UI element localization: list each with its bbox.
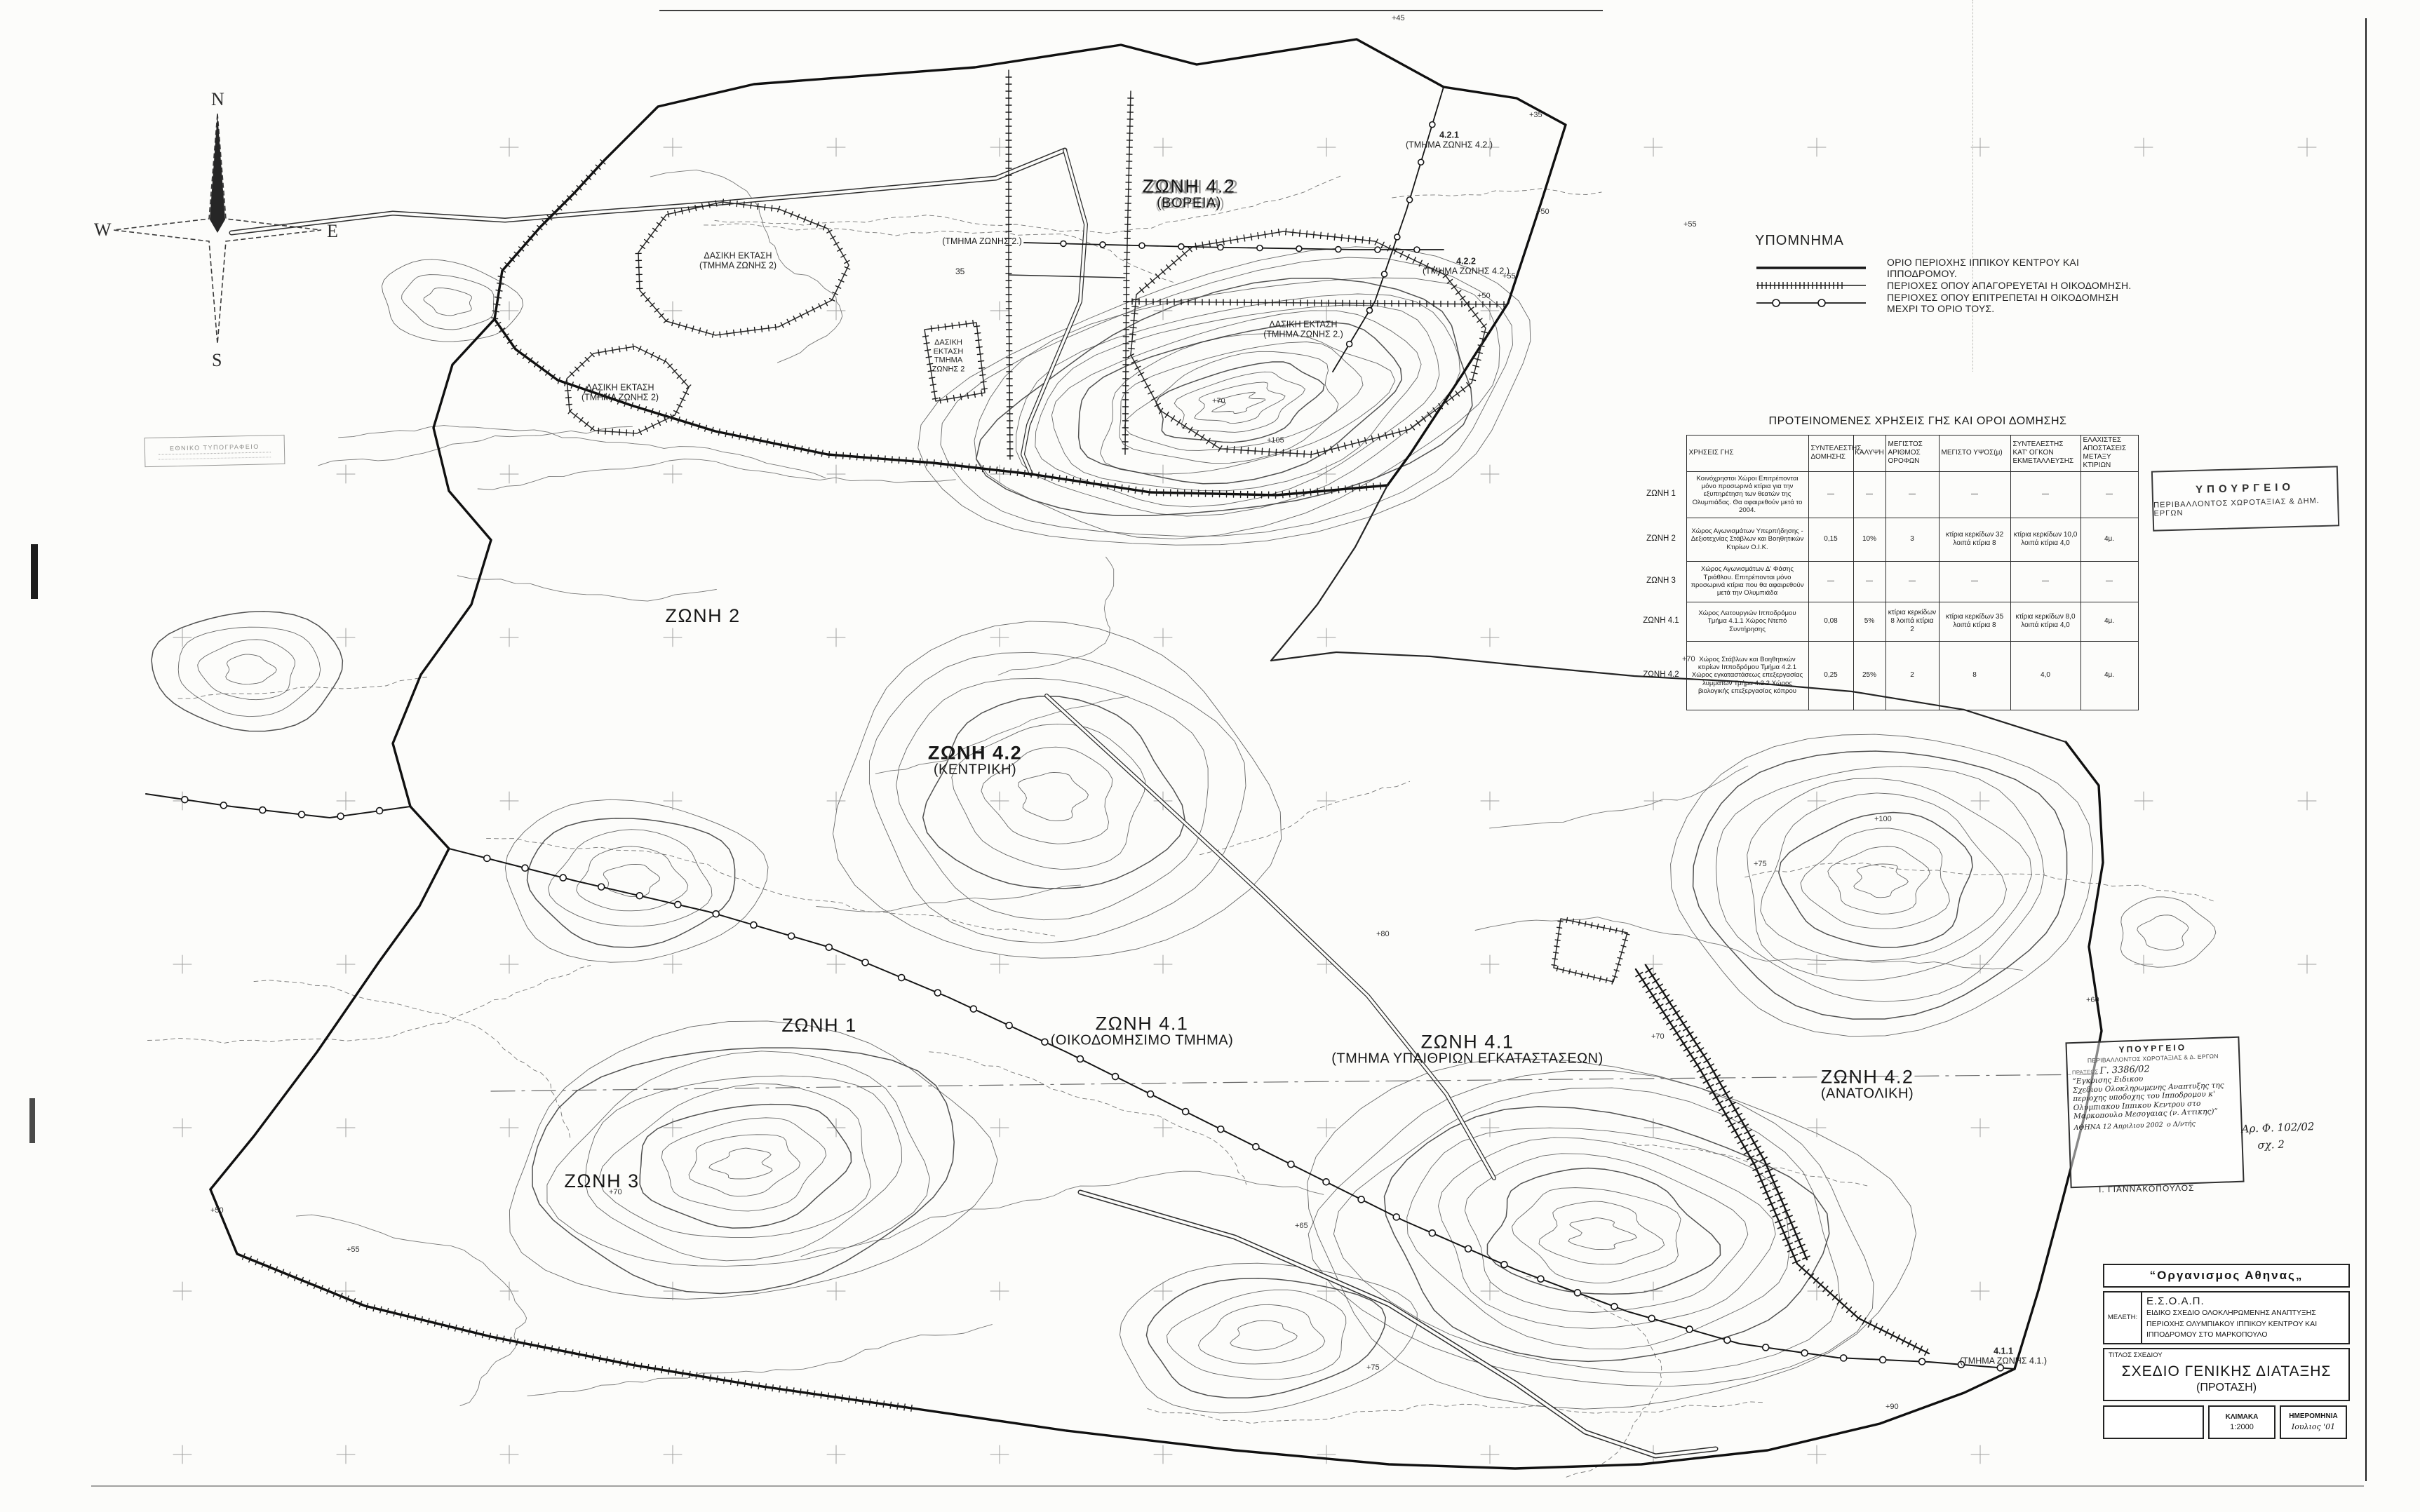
drawing-subtitle: (ΠΡΟΤΑΣΗ) [2109, 1382, 2344, 1394]
zone-label-4-2-central: ΖΩΝΗ 4.2 (ΚΕΝΤΡΙΚΗ) [928, 743, 1022, 777]
area-label-zone2-part: (ΤΜΗΜΑ ΖΩΝΗΣ 2.) [942, 236, 1022, 246]
row-zone-label: ΖΩΝΗ 4.2 [1636, 641, 1686, 710]
row-zone-label: ΖΩΝΗ 3 [1636, 561, 1686, 602]
table-cell: 4,0 [2010, 641, 2081, 710]
land-use-table: ΠΡΟΤΕΙΝΟΜΕΝΕΣ ΧΡΗΣΕΙΣ ΓΗΣ ΚΑΙ ΟΡΟΙ ΔΟΜΗΣ… [1636, 415, 2158, 710]
hatched-line-icon [1755, 280, 1867, 291]
legend: ΥΠΟΜΝΗΜΑ ΟΡΙΟ ΠΕΡΙΟΧΗΣ ΙΠΠΙΚΟΥ ΚΕΝΤΡΟΥ Κ… [1755, 233, 2134, 311]
compass-n-label: N [211, 89, 224, 109]
roads [231, 150, 2097, 1456]
scan-crease [1972, 0, 1973, 372]
approval-protocol-prefix: ΠΡΑΞΕΩΣ [2072, 1069, 2099, 1076]
scale-label: ΚΛΙΜΑΚΑ [2226, 1413, 2259, 1421]
zone-label-4-1-openair: ΖΩΝΗ 4.1 (ΤΜΗΜΑ ΥΠΑΙΘΡΙΩΝ ΕΓΚΑΤΑΣΤΑΣΕΩΝ) [1331, 1032, 1603, 1066]
table-cell: 8 [1939, 641, 2011, 710]
elevation-label: +70 [1651, 1032, 1665, 1041]
zone-label-4-2-east: ΖΩΝΗ 4.2 (ΑΝΑΤΟΛΙΚΗ) [1821, 1067, 1914, 1101]
table-title: ΠΡΟΤΕΙΝΟΜΕΝΕΣ ΧΡΗΣΕΙΣ ΓΗΣ ΚΑΙ ΟΡΟΙ ΔΟΜΗΣ… [1678, 415, 2158, 428]
table-cell: — [1808, 471, 1854, 518]
elevation-label: +100 [1874, 815, 1892, 823]
grid-crosses [173, 138, 2316, 1464]
approval-stamp: ΥΠΟΥΡΓΕΙΟ ΠΕΡΙΒΑΛΛΟΝΤΟΣ ΧΩΡΟΤΑΞΙΑΣ & Δ. … [2065, 1037, 2244, 1189]
map-sheet: N E S W ΕΘΝΙΚΟ ΤΥΠΟΓΡΑΦΕΙΟ ΥΠΟΜΝΗΜΑ ΟΡΙΟ… [0, 0, 2420, 1512]
table-cell: Κοινόχρηστοι Χώροι Επιτρέπονται μόνο προ… [1686, 471, 1809, 518]
elevation-label: +65 [1295, 1222, 1308, 1230]
table-cell: — [1853, 561, 1886, 602]
ministry-stamp-line1: ΥΠΟΥΡΓΕΙΟ [2196, 481, 2294, 496]
zone-label-4-2-north: ΖΩΝΗ 4.2 (ΒΟΡΕΙΑ) [1143, 176, 1236, 210]
elevation-label: +50 [210, 1206, 224, 1215]
date-label: ΗΜΕΡΟΜΗΝΙΑ [2289, 1412, 2337, 1420]
row-zone-label: ΖΩΝΗ 4.1 [1636, 602, 1686, 641]
compass-rose: N E S W [91, 84, 344, 379]
drawing-title-box: ΤΙΤΛΟΣ ΣΧΕΔΙΟΥ ΣΧΕΔΙΟ ΓΕΝΙΚΗΣ ΔΙΑΤΑΞΗΣ (… [2103, 1348, 2350, 1401]
elevation-label: +75 [1754, 860, 1767, 868]
study-label: ΜΕΛΕΤΗ: [2103, 1291, 2141, 1344]
table-cell: 3 [1885, 518, 1940, 562]
table-cell: — [1808, 561, 1854, 602]
elevation-label: +50 [1477, 292, 1491, 300]
compass-north-needle [210, 114, 225, 233]
row-zone-label: ΖΩΝΗ 2 [1636, 518, 1686, 561]
project-line: ΙΠΠΟΔΡΟΜΟΥ ΣΤΟ ΜΑΡΚΟΠΟΥΛΟ [2146, 1330, 2344, 1340]
compass-e-label: E [327, 221, 338, 241]
title-block: “Οργανισμος Αθηνας„ ΜΕΛΕΤΗ: Ε.Σ.Ο.Α.Π. Ε… [2103, 1264, 2350, 1439]
elevation-label: +45 [1392, 14, 1405, 22]
area-label-411: 4.1.1 (ΤΜΗΜΑ ΖΩΝΗΣ 4.1.) [1960, 1346, 2047, 1367]
table-cell: 0,08 [1808, 602, 1854, 642]
table-cell: — [1939, 561, 2011, 602]
area-label-forest-3: ΔΑΣΙΚΗ ΕΚΤΑΣΗ ΤΜΗΜΑ ΖΩΝΗΣ 2 [921, 339, 976, 374]
col-header: ΜΕΓΙΣΤΟΣ ΑΡΙΘΜΟΣ ΟΡΟΦΩΝ [1885, 435, 1940, 472]
table-cell: κτίρια κερκίδων 10,0 λοιπά κτίρια 4,0 [2010, 518, 2081, 562]
circle-line-icon [1755, 297, 1867, 309]
table-cell: 4μ. [2080, 641, 2139, 710]
table-cell: κτίρια κερκίδων 35 λοιπά κτίρια 8 [1939, 602, 2011, 642]
table-cell: Χώρος Αγωνισμάτων Δ' Φάσης Τριάθλου. Επι… [1686, 561, 1809, 602]
sheet-frame-right [2365, 18, 2367, 1481]
table-cell: Χώρος Λειτουργιών Ιπποδρόμου Τμήμα 4.1.1… [1686, 602, 1809, 642]
elevation-label: +70 [1682, 655, 1695, 663]
elevation-label: +80 [1376, 930, 1390, 938]
table-cell: — [2010, 471, 2081, 518]
col-header: ΕΛΑΧΙΣΤΕΣ ΑΠΟΣΤΑΣΕΙΣ ΜΕΤΑΞΥ ΚΤΙΡΙΩΝ [2080, 435, 2139, 472]
elevation-label: +105 [1267, 436, 1284, 445]
area-label-421: 4.2.1 (ΤΜΗΜΑ ΖΩΝΗΣ 4.2.) [1406, 130, 1493, 151]
table-cell: — [2010, 561, 2081, 602]
col-header: ΧΡΗΣΕΙΣ ΓΗΣ [1686, 435, 1809, 472]
col-header: ΚΑΛΥΨΗ [1853, 435, 1886, 472]
project-line: ΕΙΔΙΚΟ ΣΧΕΔΙΟ ΟΛΟΚΛΗΡΩΜΕΝΗΣ ΑΝΑΠΤΥΞΗΣ [2146, 1309, 2344, 1318]
approval-role: ο Δ/ντής [2167, 1120, 2196, 1128]
map-canvas [0, 0, 2420, 1512]
contour-lines [148, 170, 2216, 1477]
reference-number: Αρ. Φ. 102/02 [2241, 1118, 2315, 1138]
legend-item-label: ΟΡΙΟ ΠΕΡΙΟΧΗΣ ΙΠΠΙΚΟΥ ΚΕΝΤΡΟΥ ΚΑΙ ΙΠΠΟΔΡ… [1887, 257, 2134, 279]
elevation-label: +90 [1885, 1403, 1899, 1411]
solid-line-icon [1755, 263, 1867, 273]
elevation-label: +75 [1366, 1363, 1380, 1372]
table-cell: Χώρος Αγωνισμάτων Υπερπήδησης - Δεξιοτεχ… [1686, 518, 1809, 562]
legend-item-label: ΠΕΡΙΟΧΕΣ ΟΠΟΥ ΕΠΙΤΡΕΠΕΤΑΙ Η ΟΙΚΟΔΟΜΗΣΗ Μ… [1887, 292, 2134, 314]
legend-item-label: ΠΕΡΙΟΧΕΣ ΟΠΟΥ ΑΠΑΓΟΡΕΥΕΤΑΙ Η ΟΙΚΟΔΟΜΗΣΗ. [1887, 280, 2131, 291]
col-header: ΣΥΝΤΕΛΕΣΤΗΣ ΔΟΜΗΣΗΣ [1808, 435, 1854, 472]
row-zone-label: ΖΩΝΗ 1 [1636, 471, 1686, 518]
table-cell: 0,25 [1808, 641, 1854, 710]
sheet-frame-top [659, 10, 1603, 11]
table-corner-cell [1636, 435, 1686, 471]
sheet-frame-bottom [91, 1485, 2364, 1487]
reference-sheet: σχ. 2 [2257, 1135, 2315, 1154]
compass-s-label: S [212, 350, 222, 370]
scale-box: ΚΛΙΜΑΚΑ 1:2000 [2208, 1405, 2276, 1439]
printing-office-stamp: ΕΘΝΙΚΟ ΤΥΠΟΓΡΑΦΕΙΟ [144, 435, 285, 467]
zone-label-4-1-buildable: ΖΩΝΗ 4.1 (ΟΙΚΟΔΟΜΗΣΙΜΟ ΤΜΗΜΑ) [1051, 1013, 1234, 1048]
legend-item-boundary: ΟΡΙΟ ΠΕΡΙΟΧΗΣ ΙΠΠΙΚΟΥ ΚΕΝΤΡΟΥ ΚΑΙ ΙΠΠΟΔΡ… [1755, 259, 2134, 276]
ministry-stamp-line2: ΠΕΡΙΒΑΛΛΟΝΤΟΣ ΧΩΡΟΤΑΞΙΑΣ & ΔΗΜ. ΕΡΓΩΝ [2153, 496, 2338, 518]
drawing-title: ΣΧΕΔΙΟ ΓΕΝΙΚΗΣ ΔΙΑΤΑΞΗΣ [2109, 1363, 2344, 1380]
study-description: Ε.Σ.Ο.Α.Π. ΕΙΔΙΚΟ ΣΧΕΔΙΟ ΟΛΟΚΛΗΡΩΜΕΝΗΣ Α… [2141, 1291, 2350, 1344]
table-cell: 25% [1853, 641, 1886, 710]
table-cell: — [1939, 471, 2011, 518]
drawing-title-label: ΤΙΤΛΟΣ ΣΧΕΔΙΟΥ [2109, 1351, 2344, 1359]
table-cell: — [1885, 471, 1940, 518]
col-header: ΣΥΝΤΕΛΕΣΤΗΣ ΚΑΤ' ΟΓΚΟΝ ΕΚΜΕΤΑΛΛΕΥΣΗΣ [2010, 435, 2081, 472]
table-cell: 2 [1885, 641, 1940, 710]
table-cell: κτίρια κερκίδων 8,0 λοιπά κτίρια 4,0 [2010, 602, 2081, 642]
legend-title: ΥΠΟΜΝΗΜΑ [1755, 233, 2134, 249]
table-cell: — [1885, 561, 1940, 602]
project-line: ΠΕΡΙΟΧΗΣ ΟΛΥΜΠΙΑΚΟΥ ΙΠΠΙΚΟΥ ΚΕΝΤΡΟΥ ΚΑΙ [2146, 1320, 2344, 1330]
col-header: ΜΕΓΙΣΤΟ ΥΨΟΣ(μ) [1939, 435, 2011, 472]
elevation-label: +70 [1212, 397, 1225, 405]
scale-value: 1:2000 [2230, 1423, 2254, 1431]
table-cell: 10% [1853, 518, 1886, 562]
date-box: ΗΜΕΡΟΜΗΝΙΑ Ιουλιος '01 [2280, 1405, 2347, 1439]
compass-w-label: W [94, 220, 112, 240]
table-cell: 0,15 [1808, 518, 1854, 562]
area-label-422: 4.2.2 (ΤΜΗΜΑ ΖΩΝΗΣ 4.2.) [1423, 257, 1510, 277]
scan-mark-left-1 [31, 544, 38, 599]
empty-cell [2103, 1405, 2204, 1439]
table-cell: 4μ. [2080, 602, 2139, 642]
zone-label-1: ΖΩΝΗ 1 [781, 1015, 856, 1035]
ministry-stamp: ΥΠΟΥΡΓΕΙΟ ΠΕΡΙΒΑΛΛΟΝΤΟΣ ΧΩΡΟΤΑΞΙΑΣ & ΔΗΜ… [2151, 466, 2339, 531]
zone-label-2: ΖΩΝΗ 2 [665, 606, 740, 626]
elevation-label: +60 [2086, 996, 2099, 1004]
elevation-label: +70 [609, 1188, 622, 1196]
organization-name: “Οργανισμος Αθηνας„ [2103, 1264, 2350, 1288]
approval-signature: Ι. ΓΙΑΝΝΑΚΟΠΟΥΛΟΣ [2099, 1183, 2195, 1194]
elevation-label: +55 [1683, 220, 1697, 229]
printing-office-title: ΕΘΝΙΚΟ ΤΥΠΟΓΡΑΦΕΙΟ [170, 443, 260, 452]
project-code: Ε.Σ.Ο.Α.Π. [2146, 1295, 2344, 1307]
table-cell: Χώρος Στάβλων και Βοηθητικών κτιρίων Ιππ… [1686, 641, 1809, 710]
elevation-label: +50 [1536, 208, 1550, 216]
elevation-label: +35 [1529, 111, 1542, 119]
printing-office-illegible-text [159, 452, 271, 459]
date-value: Ιουλιος '01 [2292, 1422, 2335, 1431]
table-cell: κτίρια κερκίδων 8 λοιπά κτίρια 2 [1885, 602, 1940, 642]
scan-mark-left-2 [29, 1098, 35, 1143]
reference-note: Αρ. Φ. 102/02 σχ. 2 [2241, 1118, 2315, 1154]
table-cell: — [1853, 471, 1886, 518]
zone-label-3: ΖΩΝΗ 3 [564, 1171, 639, 1191]
legend-item-build-to-limit: ΠΕΡΙΟΧΕΣ ΟΠΟΥ ΕΠΙΤΡΕΠΕΤΑΙ Η ΟΙΚΟΔΟΜΗΣΗ Μ… [1755, 294, 2134, 311]
table-cell: — [2080, 561, 2139, 602]
point-note-35: 35 [955, 266, 964, 276]
table-cell: — [2080, 471, 2139, 518]
table-cell: κτίρια κερκίδων 32 λοιπά κτίρια 8 [1939, 518, 2011, 562]
area-label-forest-4: ΔΑΣΙΚΗ ΕΚΤΑΣΗ (ΤΜΗΜΑ ΖΩΝΗΣ 2.) [1263, 320, 1343, 340]
table-cell: 5% [1853, 602, 1886, 642]
table-cell: 4μ. [2080, 518, 2139, 562]
elevation-label: +55 [347, 1246, 360, 1254]
area-label-forest-1: ΔΑΣΙΚΗ ΕΚΤΑΣΗ (ΤΜΗΜΑ ΖΩΝΗΣ 2) [699, 251, 777, 271]
area-label-forest-2: ΔΑΣΙΚΗ ΕΚΤΑΣΗ (ΤΜΗΜΑ ΖΩΝΗΣ 2) [582, 383, 659, 403]
elevation-label: +55 [1503, 272, 1516, 281]
